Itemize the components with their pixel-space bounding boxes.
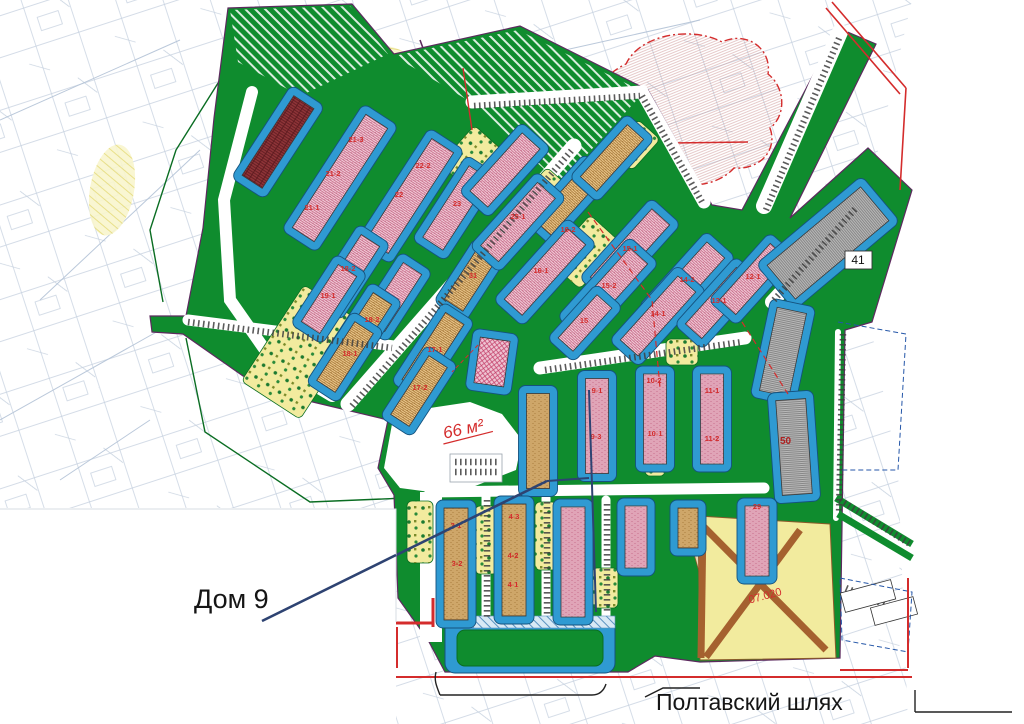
white-annotation-sheet (0, 509, 396, 724)
building-number: 17-2 (412, 383, 427, 392)
building-number: 19-1 (320, 291, 335, 300)
building-number: 10-1 (647, 429, 662, 438)
building-number: 18-2 (340, 264, 355, 273)
building-slab (767, 390, 821, 504)
building-number: 12-1 (745, 272, 760, 281)
building-number: 23 (453, 199, 461, 208)
building-number: 21-3 (348, 135, 363, 144)
building-number: 13-1 (711, 296, 726, 305)
building-number: 4-1 (508, 580, 519, 589)
courtyard-park (666, 339, 698, 365)
building-number: 21-1 (304, 203, 319, 212)
building-slab (617, 498, 655, 576)
building-number: 4-3 (509, 512, 520, 521)
building-slab (693, 366, 732, 472)
building-number: 21-2 (325, 169, 340, 178)
building-number: 16-1 (533, 266, 548, 275)
building-number: 9-1 (592, 386, 603, 395)
building-number: 18-1 (342, 349, 357, 358)
building-41-badge: 41 (845, 251, 872, 269)
building-number: 15-2 (601, 281, 616, 290)
building-slab (670, 500, 706, 556)
building-number: 31 (469, 271, 477, 280)
building-number: 14-2 (679, 275, 694, 284)
building-number: 9-3 (591, 432, 602, 441)
dom9-label: Дом 9 (194, 584, 269, 614)
courtyard-park (407, 501, 433, 563)
building-number: 25-1 (510, 212, 525, 221)
building-50-label: 50 (780, 436, 792, 447)
building-number: 29 (753, 502, 761, 511)
building-number: 15-1 (622, 244, 637, 253)
building-number: 17-1 (427, 345, 442, 354)
building-number: 22 (395, 190, 403, 199)
street-label: Полтавский шлях (656, 689, 843, 715)
scanned-master-plan: 21-321-221-122-2222318-219-13118-218-117… (0, 0, 1024, 724)
building-slab (553, 499, 593, 625)
building-number: 11-2 (705, 434, 720, 443)
building-number: 16-2 (560, 225, 575, 234)
badge-41-text: 41 (851, 253, 865, 267)
building-number: 11-1 (705, 386, 720, 395)
building-number: 4-2 (508, 551, 519, 560)
building-number: 15 (580, 316, 588, 325)
building-number: 3-2 (452, 559, 463, 568)
building-number: 22-2 (415, 161, 430, 170)
building-slab (465, 328, 519, 396)
building-number: 18-2 (364, 315, 379, 324)
parking-lot (450, 454, 502, 482)
map-canvas: 21-321-221-122-2222318-219-13118-218-117… (0, 0, 1024, 724)
